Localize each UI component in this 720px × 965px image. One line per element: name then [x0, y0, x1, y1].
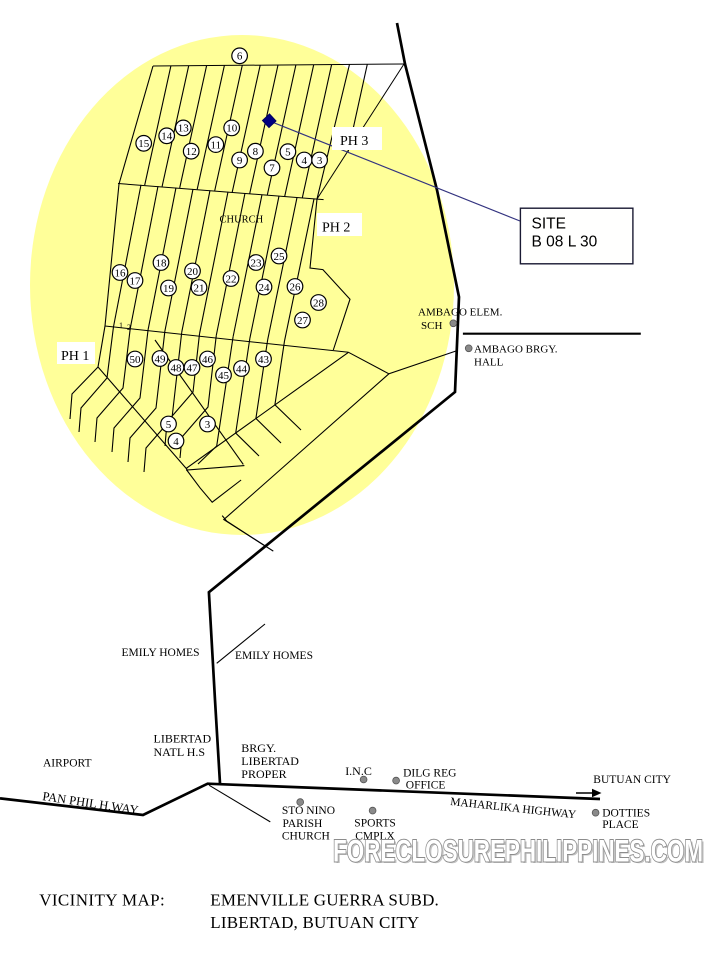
svg-text:SCH: SCH	[421, 320, 442, 332]
svg-text:SPORTS: SPORTS	[354, 818, 396, 830]
svg-text:EMENVILLE GUERRA SUBD.: EMENVILLE GUERRA SUBD.	[210, 891, 439, 910]
svg-text:STO NINO: STO NINO	[282, 805, 335, 817]
svg-text:PH 3: PH 3	[340, 134, 368, 149]
svg-text:AIRPORT: AIRPORT	[43, 758, 92, 770]
svg-text:OFFICE: OFFICE	[406, 780, 446, 792]
svg-text:50: 50	[130, 354, 142, 366]
svg-text:3: 3	[205, 419, 211, 431]
svg-text:6: 6	[237, 51, 243, 63]
svg-text:48: 48	[171, 362, 183, 374]
svg-text:BRGY.: BRGY.	[241, 741, 276, 755]
svg-text:27: 27	[297, 315, 309, 327]
svg-text:14: 14	[161, 131, 173, 143]
svg-text:44: 44	[236, 363, 248, 375]
svg-text:21: 21	[194, 282, 205, 294]
svg-text:MAHARLIKA HIGHWAY: MAHARLIKA HIGHWAY	[450, 796, 578, 821]
svg-text:22: 22	[226, 273, 237, 285]
svg-text:EMILY HOMES: EMILY HOMES	[235, 650, 313, 662]
svg-text:LIBERTAD, BUTUAN CITY: LIBERTAD, BUTUAN CITY	[210, 913, 419, 932]
svg-text:PLACE: PLACE	[602, 819, 638, 831]
svg-text:28: 28	[313, 297, 325, 309]
svg-text:CHURCH: CHURCH	[220, 215, 264, 226]
svg-text:3: 3	[317, 155, 323, 167]
svg-text:AMBAGO BRGY.: AMBAGO BRGY.	[474, 344, 558, 356]
svg-text:13: 13	[178, 123, 190, 135]
svg-text:11: 11	[211, 139, 222, 151]
svg-text:43: 43	[258, 354, 270, 366]
svg-text:PAN PHIL H.WAY: PAN PHIL H.WAY	[42, 789, 140, 817]
svg-text:BUTUAN CITY: BUTUAN CITY	[593, 774, 671, 786]
svg-text:NATL H.S: NATL H.S	[154, 745, 206, 759]
svg-text:9: 9	[237, 155, 243, 167]
svg-text:HALL: HALL	[474, 357, 504, 369]
svg-text:EMILY HOMES: EMILY HOMES	[122, 647, 200, 659]
svg-text:LIBERTAD: LIBERTAD	[154, 732, 212, 746]
svg-text:LIBERTAD: LIBERTAD	[241, 754, 299, 768]
svg-text:5: 5	[166, 419, 172, 431]
svg-text:B 08 L 30: B 08 L 30	[532, 234, 598, 251]
svg-text:19: 19	[163, 283, 175, 295]
svg-text:26: 26	[290, 281, 302, 293]
svg-text:17: 17	[130, 275, 142, 287]
svg-text:10: 10	[226, 123, 238, 135]
svg-text:5: 5	[285, 147, 291, 159]
svg-text:FORECLOSUREPHILIPPINES.COM: FORECLOSUREPHILIPPINES.COM	[333, 833, 703, 869]
svg-text:12: 12	[186, 146, 197, 158]
svg-text:I.N.C: I.N.C	[345, 764, 372, 778]
svg-text:25: 25	[274, 251, 286, 263]
svg-text:24: 24	[259, 282, 271, 294]
svg-text:45: 45	[218, 370, 230, 382]
svg-text:4: 4	[173, 436, 179, 448]
svg-text:2: 2	[127, 323, 131, 332]
svg-text:1: 1	[119, 321, 123, 330]
svg-text:SITE: SITE	[532, 216, 566, 233]
svg-text:AMBAGO ELEM.: AMBAGO ELEM.	[418, 307, 503, 319]
svg-text:VICINITY MAP:: VICINITY MAP:	[39, 891, 165, 910]
svg-text:PH 2: PH 2	[322, 221, 350, 236]
svg-text:23: 23	[251, 257, 263, 269]
svg-text:15: 15	[138, 138, 150, 150]
svg-text:PH 1: PH 1	[61, 349, 89, 364]
svg-text:DILG REG: DILG REG	[403, 768, 456, 780]
svg-text:8: 8	[253, 146, 259, 158]
svg-text:46: 46	[202, 354, 214, 366]
svg-text:18: 18	[156, 257, 168, 269]
svg-text:PROPER: PROPER	[241, 767, 286, 781]
svg-text:47: 47	[187, 362, 199, 374]
svg-text:4: 4	[301, 155, 307, 167]
svg-text:49: 49	[155, 353, 167, 365]
svg-text:CHURCH: CHURCH	[282, 831, 330, 843]
svg-text:20: 20	[187, 266, 199, 278]
svg-text:DOTTIES: DOTTIES	[602, 808, 650, 820]
svg-text:7: 7	[269, 163, 275, 175]
svg-text:16: 16	[115, 267, 127, 279]
svg-text:PARISH: PARISH	[283, 818, 323, 830]
